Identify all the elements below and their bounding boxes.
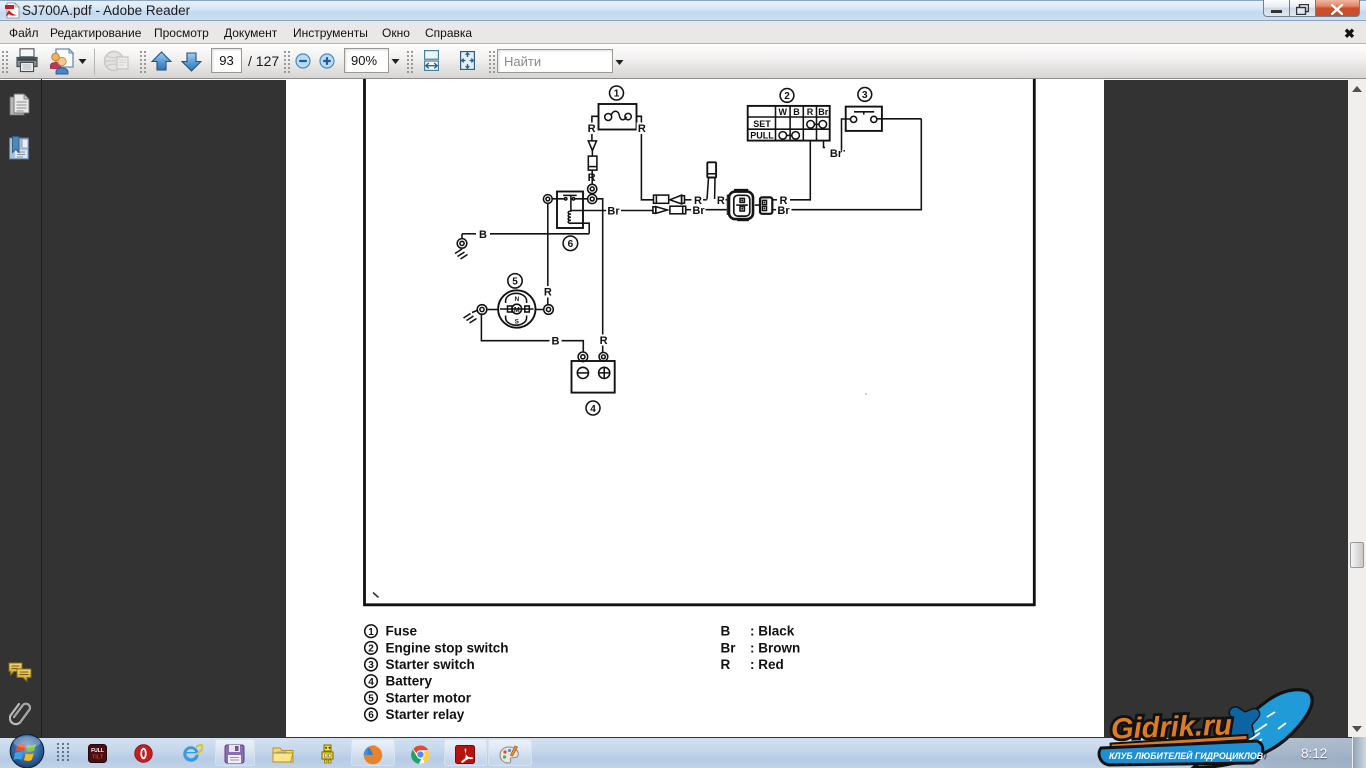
- svg-text:Br: Br: [818, 107, 828, 117]
- svg-text:R: R: [600, 335, 608, 347]
- svg-text:Br: Br: [692, 205, 705, 217]
- svg-text:R: R: [807, 107, 814, 117]
- svg-text:SET: SET: [753, 119, 771, 129]
- svg-text:5: 5: [512, 277, 518, 288]
- svg-text:W: W: [779, 107, 788, 117]
- svg-text:1: 1: [368, 627, 374, 638]
- svg-text:2: 2: [368, 644, 374, 655]
- svg-text:3: 3: [368, 660, 374, 671]
- svg-text:4: 4: [368, 677, 374, 688]
- svg-text:B: B: [479, 229, 487, 241]
- svg-text:B: B: [552, 336, 560, 348]
- svg-text:B: B: [793, 107, 800, 117]
- svg-text:R: R: [721, 657, 731, 672]
- svg-text:Starter motor: Starter motor: [386, 690, 472, 705]
- svg-text:6: 6: [568, 239, 574, 250]
- svg-text:Engine stop switch: Engine stop switch: [386, 640, 509, 655]
- svg-text:FULL: FULL: [91, 748, 104, 754]
- svg-text:1: 1: [614, 89, 620, 100]
- svg-text:Starter switch: Starter switch: [386, 657, 475, 672]
- svg-text:B: B: [721, 624, 731, 639]
- svg-text:3: 3: [862, 90, 868, 101]
- svg-text:R: R: [588, 123, 596, 135]
- svg-text:Br: Br: [607, 206, 620, 218]
- svg-text:R: R: [638, 123, 646, 135]
- svg-text:Br: Br: [721, 640, 737, 655]
- svg-text:Fuse: Fuse: [386, 624, 418, 639]
- svg-text:КЛУБ ЛЮБИТЕЛЕЙ ГИДРОЦИКЛОВ: КЛУБ ЛЮБИТЕЛЕЙ ГИДРОЦИКЛОВ: [1109, 750, 1264, 761]
- svg-text:N: N: [514, 296, 519, 303]
- svg-text:M: M: [514, 307, 520, 314]
- svg-text:2: 2: [784, 91, 790, 102]
- svg-text:4: 4: [590, 404, 596, 415]
- svg-text:PULL: PULL: [750, 131, 774, 141]
- svg-text:5: 5: [368, 694, 374, 705]
- svg-text:S: S: [515, 319, 520, 326]
- svg-text:Battery: Battery: [386, 674, 433, 689]
- svg-text:R: R: [544, 287, 552, 299]
- svg-text:: Brown: : Brown: [750, 640, 800, 655]
- svg-text:Br: Br: [777, 205, 790, 217]
- svg-text:TILT: TILT: [92, 755, 104, 761]
- svg-text:: Red: : Red: [750, 657, 784, 672]
- svg-text:: Black: : Black: [750, 624, 795, 639]
- svg-text:Starter relay: Starter relay: [386, 707, 465, 722]
- svg-text:6: 6: [368, 710, 374, 721]
- svg-text:R: R: [717, 195, 725, 207]
